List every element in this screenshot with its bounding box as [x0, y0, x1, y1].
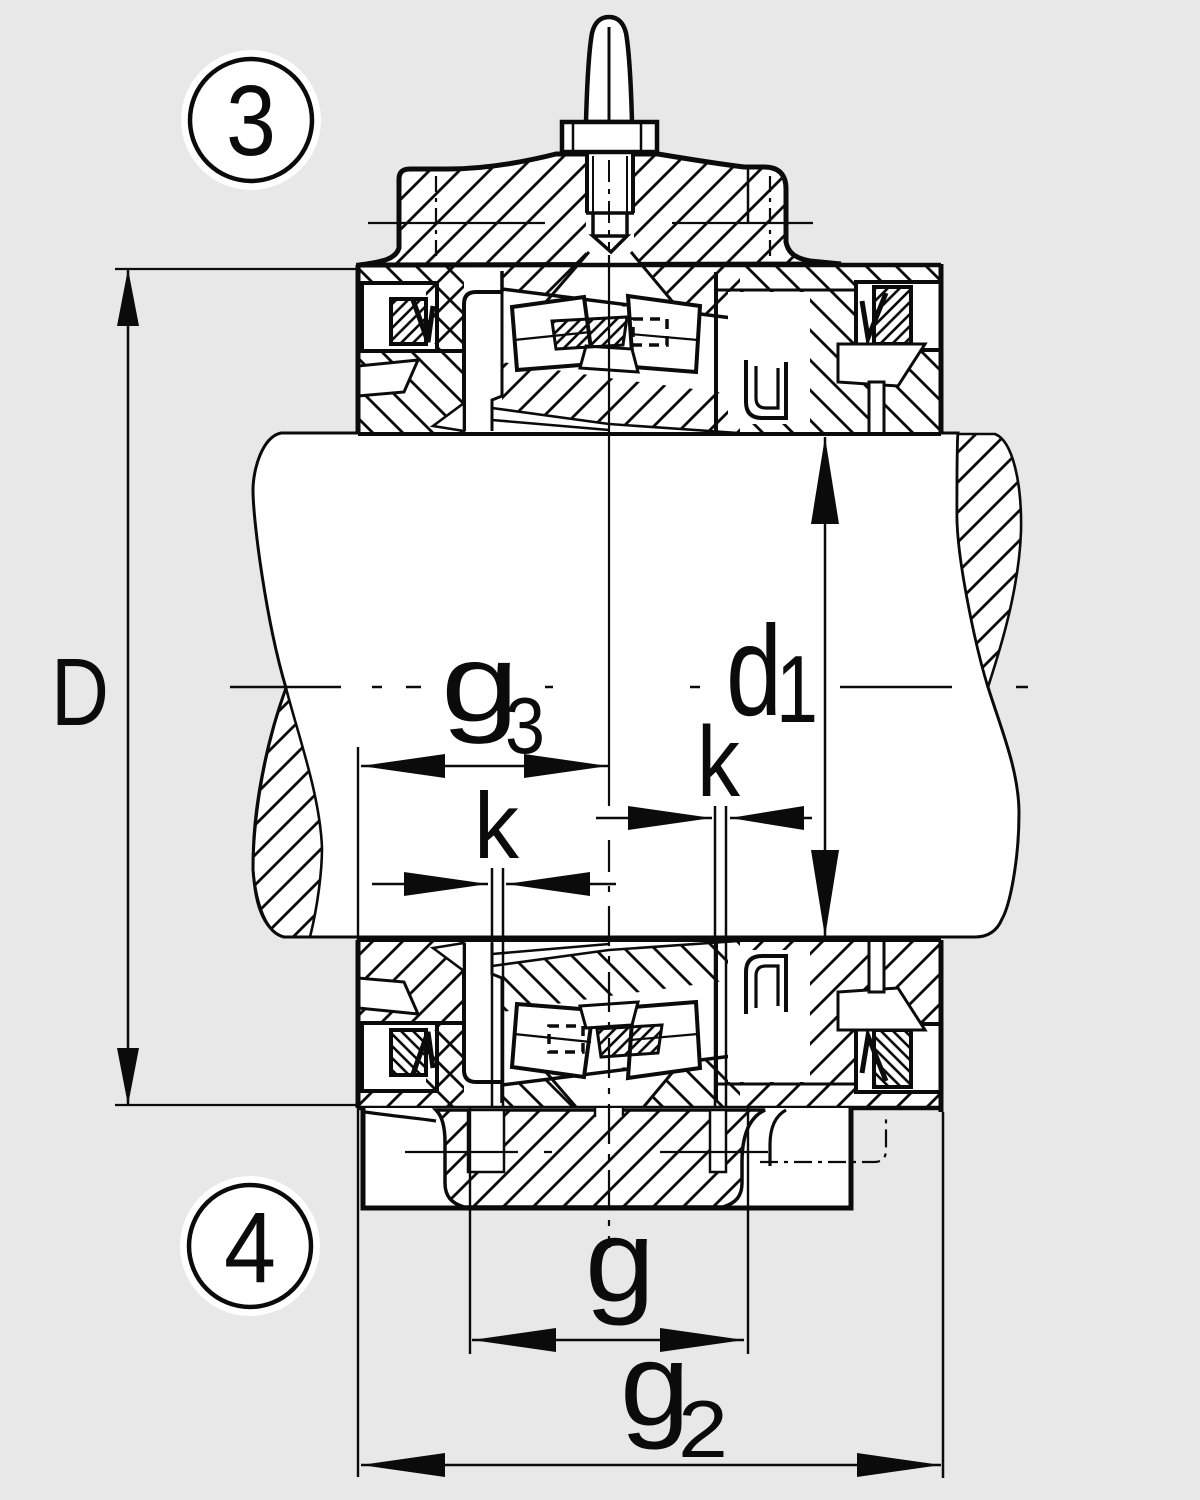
svg-text:3: 3 [226, 65, 276, 177]
svg-text:4: 4 [224, 1192, 276, 1304]
svg-text:2: 2 [678, 1385, 728, 1475]
svg-text:k: k [474, 773, 520, 878]
svg-text:k: k [697, 706, 741, 818]
svg-text:g: g [585, 1195, 655, 1327]
svg-text:D: D [51, 639, 109, 746]
svg-text:3: 3 [505, 681, 545, 770]
svg-text:1: 1 [776, 636, 818, 743]
